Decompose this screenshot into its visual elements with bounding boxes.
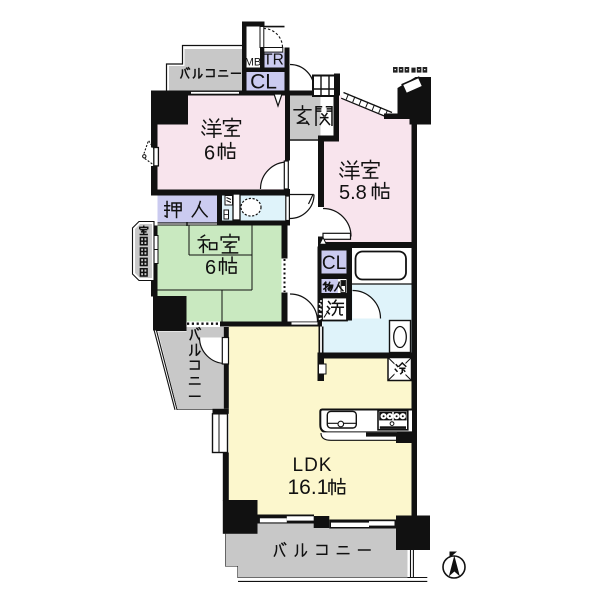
svg-text:MB: MB	[245, 57, 262, 69]
svg-text:LDK: LDK	[293, 455, 333, 476]
svg-text:6: 6	[205, 257, 216, 279]
svg-text:CL: CL	[250, 71, 277, 94]
svg-text:16.1: 16.1	[288, 476, 329, 499]
svg-text:6: 6	[204, 143, 215, 165]
svg-text:TR: TR	[263, 52, 284, 69]
svg-text:CL: CL	[322, 253, 346, 274]
svg-text:5.8: 5.8	[339, 182, 367, 204]
